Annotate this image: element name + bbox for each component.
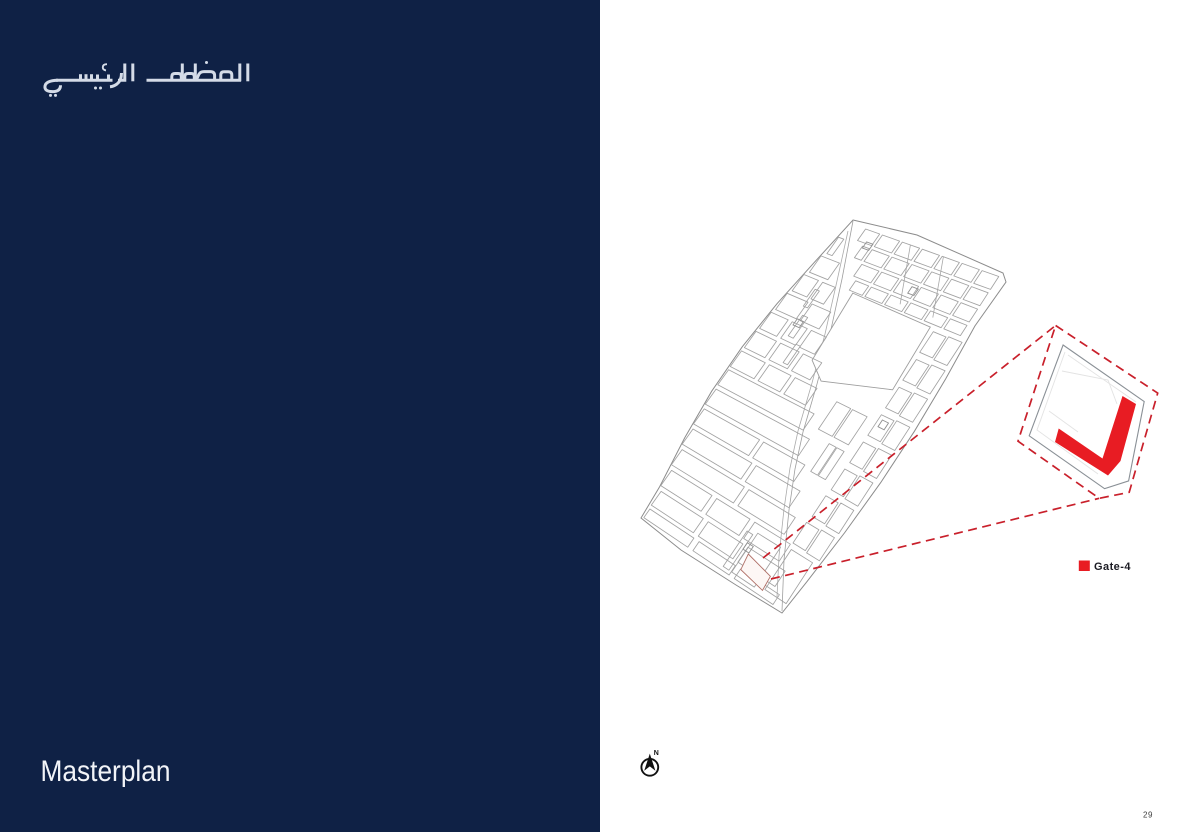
svg-text:Gate-4: Gate-4: [1094, 561, 1131, 573]
svg-text:29: 29: [1143, 811, 1153, 820]
svg-text:N: N: [654, 750, 659, 757]
svg-text:Masterplan: Masterplan: [41, 755, 171, 788]
